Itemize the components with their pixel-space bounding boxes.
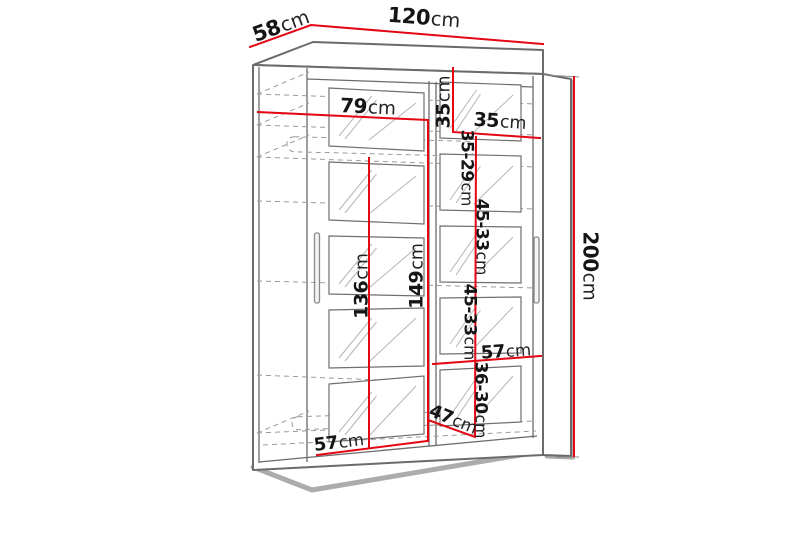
dim-unit: cm: [436, 75, 453, 102]
dim-unit: cm: [409, 243, 426, 270]
dim-label-gap-45-33-upper: 45-33cm: [473, 199, 490, 276]
dim-unit: cm: [474, 252, 490, 276]
right-side-face: [543, 74, 571, 456]
dim-label-right-height-149: 149cm: [407, 243, 426, 309]
dim-label-top-right-35: 35cm: [473, 111, 527, 134]
dim-label-gap-35-29: 35-29cm: [458, 130, 475, 207]
dim-unit: cm: [505, 342, 531, 360]
dim-label-hang-79: 79cm: [340, 95, 397, 119]
dim-label-right-57: 57cm: [480, 341, 531, 362]
dim-unit: cm: [338, 432, 365, 452]
dim-unit: cm: [430, 9, 461, 31]
dim-value: 136: [352, 281, 371, 319]
dim-value: 45-33: [473, 199, 490, 251]
dim-value: 149: [407, 271, 426, 309]
dim-value: 35: [473, 111, 500, 132]
dim-value: 200: [581, 231, 601, 271]
dim-unit: cm: [462, 337, 478, 361]
dim-unit: cm: [499, 114, 527, 133]
dim-label-left-height-136: 136cm: [352, 253, 371, 319]
dim-value: 120: [387, 5, 431, 29]
dim-value: 35: [434, 103, 453, 128]
dim-value: 35-29: [458, 130, 475, 182]
wardrobe-line-art: [0, 0, 800, 533]
dim-unit: cm: [354, 253, 371, 280]
mirror-panel: [329, 162, 424, 224]
dim-value: 45-33: [461, 284, 478, 336]
dim-unit: cm: [579, 273, 597, 301]
dim-value: 57: [480, 343, 505, 363]
left-door-handle: [315, 233, 320, 303]
mirror-panel: [329, 308, 424, 368]
dim-label-top-shelf-35: 35cm: [434, 75, 453, 128]
dim-label-height-200: 200cm: [579, 231, 600, 300]
dim-value: 57: [313, 434, 339, 455]
dim-unit: cm: [367, 99, 396, 119]
wardrobe-dimension-diagram: 58cm 120cm 200cm 79cm 35cm 35cm 35-29cm …: [0, 0, 800, 533]
dim-label-width-120: 120cm: [387, 5, 461, 32]
dim-value: 36-30: [472, 362, 489, 414]
dim-value: 79: [340, 95, 368, 116]
right-door-handle: [534, 237, 539, 303]
dim-label-gap-45-33-lower: 45-33cm: [461, 284, 478, 361]
